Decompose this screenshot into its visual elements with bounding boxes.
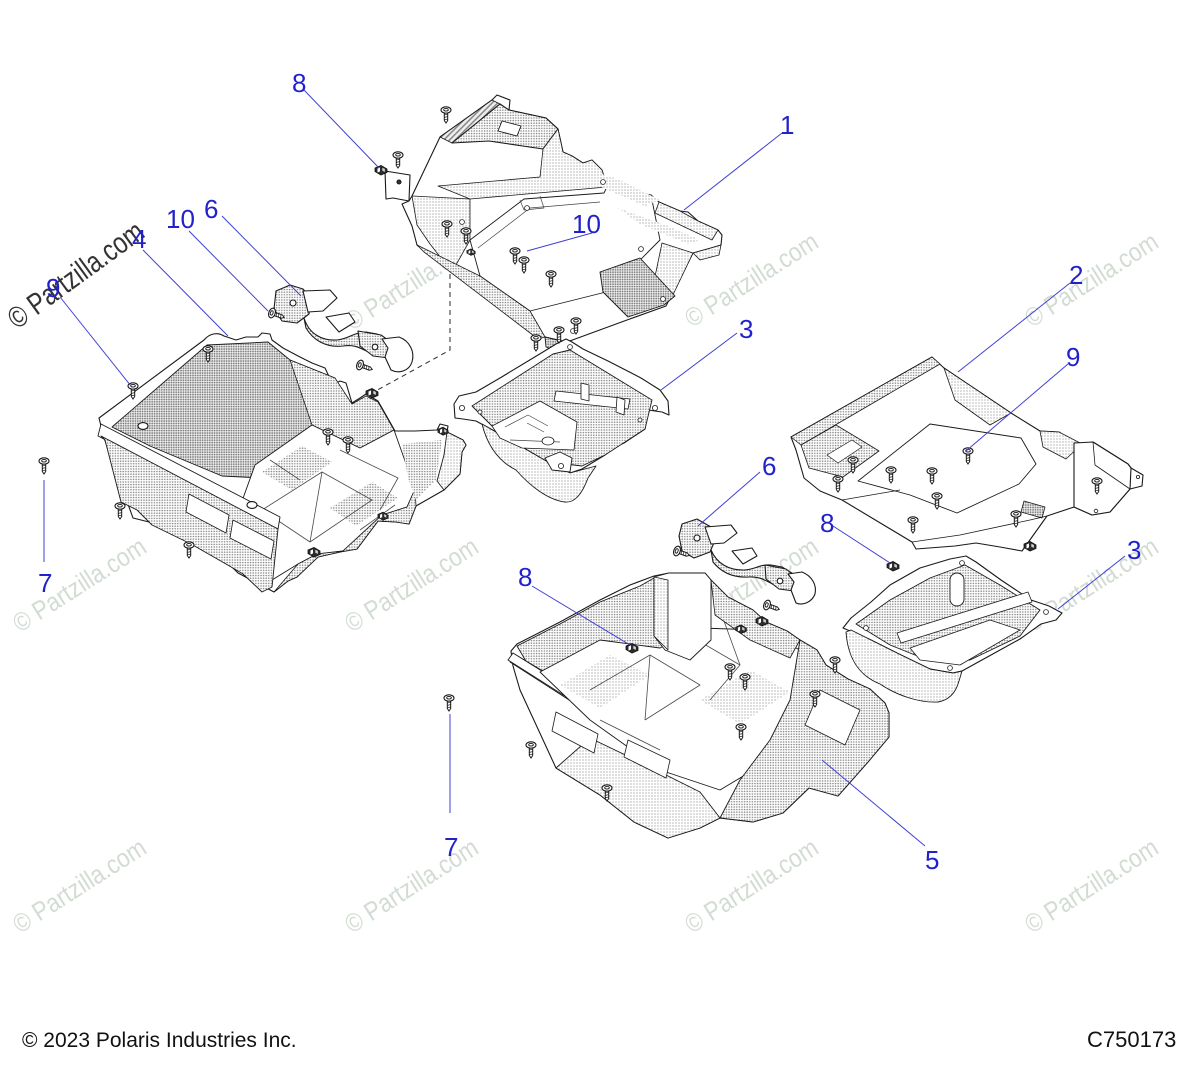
svg-text:9: 9 bbox=[46, 273, 60, 303]
svg-text:© Partzilla.com: © Partzilla.com bbox=[339, 531, 483, 638]
svg-text:© Partzilla.com: © Partzilla.com bbox=[339, 832, 483, 939]
svg-text:© Partzilla.com: © Partzilla.com bbox=[679, 832, 823, 939]
svg-text:1: 1 bbox=[780, 110, 794, 140]
svg-text:6: 6 bbox=[204, 194, 218, 224]
svg-text:4: 4 bbox=[132, 224, 146, 254]
svg-text:© Partzilla.com: © Partzilla.com bbox=[1019, 226, 1163, 333]
svg-text:C750173: C750173 bbox=[1087, 1027, 1176, 1052]
svg-text:8: 8 bbox=[820, 508, 834, 538]
svg-text:8: 8 bbox=[518, 562, 532, 592]
svg-text:2: 2 bbox=[1069, 260, 1083, 290]
svg-text:© 2023 Polaris Industries Inc.: © 2023 Polaris Industries Inc. bbox=[22, 1029, 297, 1052]
svg-text:7: 7 bbox=[444, 832, 458, 862]
svg-text:5: 5 bbox=[925, 845, 939, 875]
svg-text:© Partzilla.com: © Partzilla.com bbox=[7, 832, 151, 939]
svg-text:8: 8 bbox=[292, 68, 306, 98]
svg-text:7: 7 bbox=[38, 568, 52, 598]
svg-text:3: 3 bbox=[1127, 535, 1141, 565]
svg-text:3: 3 bbox=[739, 314, 753, 344]
svg-text:10: 10 bbox=[166, 204, 195, 234]
svg-text:6: 6 bbox=[762, 451, 776, 481]
svg-text:© Partzilla.com: © Partzilla.com bbox=[7, 531, 151, 638]
svg-text:9: 9 bbox=[1066, 342, 1080, 372]
svg-text:© Partzilla.com: © Partzilla.com bbox=[1019, 832, 1163, 939]
svg-text:10: 10 bbox=[572, 209, 601, 239]
